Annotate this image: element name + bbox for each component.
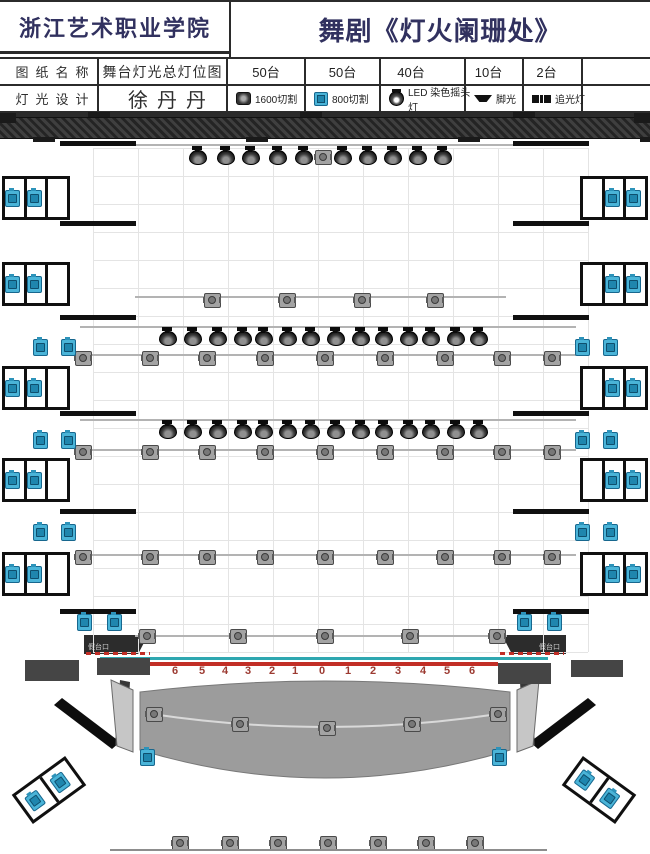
- side-light-box-right: [580, 262, 648, 306]
- grid-line: [93, 372, 588, 373]
- moving-head-fixture: [352, 331, 370, 346]
- blue-side-light-fixture: [107, 614, 122, 631]
- scale-number: 5: [440, 665, 454, 677]
- masking-bar: [60, 315, 136, 320]
- moving-head-fixture: [384, 150, 402, 165]
- moving-head-fixture: [184, 424, 202, 439]
- box-cell: [48, 461, 67, 499]
- blue-side-light-fixture: [27, 276, 42, 293]
- moving-head-fixture: [279, 424, 297, 439]
- led-fixture: [354, 293, 371, 308]
- side-light-box-right: [580, 176, 648, 220]
- led-fixture: [494, 550, 511, 565]
- moving-head-fixture: [255, 331, 273, 346]
- blue-side-light-fixture: [492, 749, 507, 766]
- masking-bar: [60, 609, 136, 614]
- led-fixture: [75, 445, 92, 460]
- red-dashed-line: [500, 652, 564, 655]
- moving-head-fixture: [217, 150, 235, 165]
- blue-side-light-fixture: [5, 190, 20, 207]
- blue-side-light-fixture: [33, 432, 48, 449]
- led-fixture: [319, 721, 336, 736]
- angled-masking-bar-right: [530, 698, 596, 749]
- grid-line: [93, 540, 588, 541]
- led-fixture: [377, 550, 394, 565]
- led-fixture: [257, 550, 274, 565]
- led-fixture: [317, 550, 334, 565]
- scale-number: 3: [241, 665, 255, 677]
- red-dashed-line: [86, 652, 150, 655]
- led-fixture: [544, 550, 561, 565]
- box-cell: [5, 179, 27, 217]
- box-cell: [626, 179, 645, 217]
- blue-side-light-fixture: [575, 432, 590, 449]
- side-light-box-right: [580, 552, 648, 596]
- downstage-line: [110, 849, 547, 851]
- blue-side-light-fixture: [605, 566, 620, 583]
- moving-head-fixture: [302, 331, 320, 346]
- blue-side-light-fixture: [626, 190, 641, 207]
- led-fixture: [199, 445, 216, 460]
- blue-side-light-fixture: [27, 472, 42, 489]
- blue-side-light-fixture: [61, 432, 76, 449]
- moving-head-fixture: [447, 331, 465, 346]
- grid-line: [93, 288, 588, 289]
- led-fixture: [75, 351, 92, 366]
- grid-line: [93, 596, 588, 597]
- blue-side-light-fixture: [575, 524, 590, 541]
- box-cell: [583, 265, 605, 303]
- box-cell: [605, 461, 627, 499]
- lighting-plot-sheet: 浙江艺术职业学院 舞剧《灯火阑珊处》 图纸名称 舞台灯光总灯位图 灯光设计 徐丹…: [0, 0, 650, 854]
- masking-block: [97, 658, 150, 675]
- moving-head-fixture: [279, 331, 297, 346]
- box-cell: [605, 369, 627, 407]
- moving-head-fixture: [255, 424, 273, 439]
- moving-head-fixture: [327, 331, 345, 346]
- moving-head-fixture: [302, 424, 320, 439]
- scale-number: 4: [416, 665, 430, 677]
- pipe-clamp: [33, 137, 55, 142]
- masking-bar: [513, 509, 589, 514]
- moving-head-fixture: [352, 424, 370, 439]
- led-fixture: [279, 293, 296, 308]
- blue-side-light-fixture: [603, 432, 618, 449]
- grid-line: [93, 456, 588, 457]
- masking-block: [25, 660, 79, 681]
- side-light-box-left: [2, 176, 70, 220]
- moving-head-fixture: [375, 424, 393, 439]
- box-cell: [5, 461, 27, 499]
- angled-masking-bar-left: [54, 698, 120, 749]
- box-cell: [583, 369, 605, 407]
- moving-head-fixture: [334, 150, 352, 165]
- scale-number: 1: [341, 665, 355, 677]
- scale-number: 5: [195, 665, 209, 677]
- blue-side-light-fixture: [49, 771, 71, 794]
- led-fixture: [377, 445, 394, 460]
- moving-head-fixture: [409, 150, 427, 165]
- led-fixture: [257, 351, 274, 366]
- pipe-batten: [80, 326, 576, 328]
- masking-bar: [60, 509, 136, 514]
- false-proscenium-label: 假台口: [88, 642, 109, 652]
- pipe-clamp: [640, 137, 650, 142]
- box-cell: [626, 369, 645, 407]
- pipe-clamp: [300, 112, 322, 117]
- side-light-box-left: [2, 458, 70, 502]
- moving-head-fixture: [327, 424, 345, 439]
- masking-block: [571, 660, 623, 677]
- moving-head-fixture: [159, 331, 177, 346]
- led-fixture: [75, 550, 92, 565]
- led-fixture: [315, 150, 332, 165]
- scale-number: 1: [288, 665, 302, 677]
- moving-head-fixture: [375, 331, 393, 346]
- led-fixture: [257, 445, 274, 460]
- blue-side-light-fixture: [547, 614, 562, 631]
- masking-block: [498, 663, 551, 684]
- box-cell: [626, 461, 645, 499]
- led-fixture: [494, 351, 511, 366]
- grid-line: [93, 232, 588, 233]
- scale-number: 2: [366, 665, 380, 677]
- led-fixture: [490, 707, 507, 722]
- led-fixture: [544, 445, 561, 460]
- blue-side-light-fixture: [5, 472, 20, 489]
- blue-side-light-fixture: [5, 566, 20, 583]
- led-fixture: [146, 707, 163, 722]
- led-fixture: [199, 550, 216, 565]
- led-fixture: [142, 550, 159, 565]
- pipe-clamp: [458, 137, 480, 142]
- moving-head-fixture: [422, 331, 440, 346]
- grid-line: [93, 400, 588, 401]
- box-cell: [626, 265, 645, 303]
- moving-head-fixture: [447, 424, 465, 439]
- led-fixture: [142, 351, 159, 366]
- moving-head-fixture: [434, 150, 452, 165]
- led-fixture: [317, 445, 334, 460]
- side-light-box-right: [580, 458, 648, 502]
- masking-bar: [513, 141, 589, 146]
- box-cell: [605, 555, 627, 593]
- blue-side-light-fixture: [603, 339, 618, 356]
- blue-side-light-fixture: [24, 789, 46, 812]
- masking-bar: [513, 315, 589, 320]
- blue-side-light-fixture: [33, 339, 48, 356]
- led-fixture: [199, 351, 216, 366]
- moving-head-fixture: [189, 150, 207, 165]
- pipe-batten: [135, 296, 506, 298]
- led-fixture: [230, 629, 247, 644]
- masking-bar: [60, 221, 136, 226]
- blue-side-light-fixture: [605, 380, 620, 397]
- side-light-box-left: [2, 262, 70, 306]
- box-cell: [583, 179, 605, 217]
- led-fixture: [489, 629, 506, 644]
- box-cell: [48, 265, 67, 303]
- pipe-batten: [80, 419, 576, 421]
- scale-number: 0: [315, 665, 329, 677]
- led-fixture: [204, 293, 221, 308]
- grid-line: [93, 624, 588, 625]
- box-cell: [583, 555, 605, 593]
- scale-number: 6: [168, 665, 182, 677]
- led-fixture: [142, 445, 159, 460]
- blue-side-light-fixture: [5, 276, 20, 293]
- blue-side-light-fixture: [77, 614, 92, 631]
- blue-side-light-fixture: [140, 749, 155, 766]
- blue-side-light-fixture: [605, 276, 620, 293]
- moving-head-fixture: [295, 150, 313, 165]
- blue-side-light-fixture: [27, 190, 42, 207]
- blue-side-light-fixture: [626, 566, 641, 583]
- grid-line: [93, 204, 588, 205]
- back-wall-bar: [0, 117, 650, 139]
- side-light-box-left: [2, 552, 70, 596]
- masking-bar: [513, 221, 589, 226]
- blue-side-light-fixture: [517, 614, 532, 631]
- box-cell: [27, 265, 49, 303]
- box-cell: [583, 461, 605, 499]
- moving-head-fixture: [422, 424, 440, 439]
- pipe-clamp: [513, 112, 535, 117]
- moving-head-fixture: [209, 331, 227, 346]
- grid-line: [93, 176, 588, 177]
- scale-number: 2: [265, 665, 279, 677]
- box-cell: [27, 369, 49, 407]
- box-cell: [48, 369, 67, 407]
- box-cell: [605, 179, 627, 217]
- moving-head-fixture: [400, 331, 418, 346]
- blue-side-light-fixture: [605, 472, 620, 489]
- box-cell: [5, 555, 27, 593]
- blue-side-light-fixture: [626, 380, 641, 397]
- stage-plot-drawing: 假台口 假台口 6543210123456: [0, 0, 650, 854]
- blue-side-light-fixture: [575, 339, 590, 356]
- led-fixture: [377, 351, 394, 366]
- blue-side-light-fixture: [61, 524, 76, 541]
- led-fixture: [139, 629, 156, 644]
- moving-head-fixture: [400, 424, 418, 439]
- scale-number: 3: [391, 665, 405, 677]
- blue-side-light-fixture: [33, 524, 48, 541]
- led-fixture: [232, 717, 249, 732]
- box-cell: [48, 179, 67, 217]
- moving-head-fixture: [470, 424, 488, 439]
- blue-side-light-fixture: [27, 380, 42, 397]
- scale-number: 4: [218, 665, 232, 677]
- led-fixture: [404, 717, 421, 732]
- side-light-box-right: [580, 366, 648, 410]
- moving-head-fixture: [209, 424, 227, 439]
- box-cell: [626, 555, 645, 593]
- blue-side-light-fixture: [61, 339, 76, 356]
- moving-head-fixture: [159, 424, 177, 439]
- grid-line: [93, 484, 588, 485]
- blue-side-light-fixture: [5, 380, 20, 397]
- pipe-clamp: [246, 137, 268, 142]
- moving-head-fixture: [234, 331, 252, 346]
- moving-head-fixture: [242, 150, 260, 165]
- led-fixture: [317, 351, 334, 366]
- blue-side-light-fixture: [27, 566, 42, 583]
- wall-end-cap: [0, 113, 16, 123]
- box-cell: [27, 179, 49, 217]
- moving-head-fixture: [470, 331, 488, 346]
- pipe-batten: [80, 144, 576, 146]
- masking-bar: [60, 411, 136, 416]
- led-fixture: [317, 629, 334, 644]
- scale-number: 6: [465, 665, 479, 677]
- led-fixture: [437, 550, 454, 565]
- wall-end-cap: [634, 113, 650, 123]
- grid-line: [93, 260, 588, 261]
- moving-head-fixture: [269, 150, 287, 165]
- box-cell: [605, 265, 627, 303]
- masking-bar: [513, 411, 589, 416]
- blue-side-light-fixture: [626, 276, 641, 293]
- led-fixture: [402, 629, 419, 644]
- box-cell: [27, 555, 49, 593]
- box-cell: [48, 555, 67, 593]
- led-fixture: [544, 351, 561, 366]
- pipe-clamp: [88, 112, 110, 117]
- led-fixture: [427, 293, 444, 308]
- blue-side-light-fixture: [574, 768, 596, 791]
- box-cell: [27, 461, 49, 499]
- blue-side-light-fixture: [603, 524, 618, 541]
- blue-side-light-fixture: [626, 472, 641, 489]
- blue-side-light-fixture: [605, 190, 620, 207]
- grid-line: [93, 568, 588, 569]
- blue-side-light-fixture: [599, 787, 621, 810]
- masking-bar: [60, 141, 136, 146]
- moving-head-fixture: [359, 150, 377, 165]
- moving-head-fixture: [184, 331, 202, 346]
- side-light-box-left: [2, 366, 70, 410]
- led-fixture: [494, 445, 511, 460]
- led-fixture: [437, 445, 454, 460]
- apron-stage-graphic: [0, 660, 650, 854]
- box-cell: [5, 265, 27, 303]
- moving-head-fixture: [234, 424, 252, 439]
- led-fixture: [437, 351, 454, 366]
- setting-line-teal: [100, 657, 548, 660]
- box-cell: [5, 369, 27, 407]
